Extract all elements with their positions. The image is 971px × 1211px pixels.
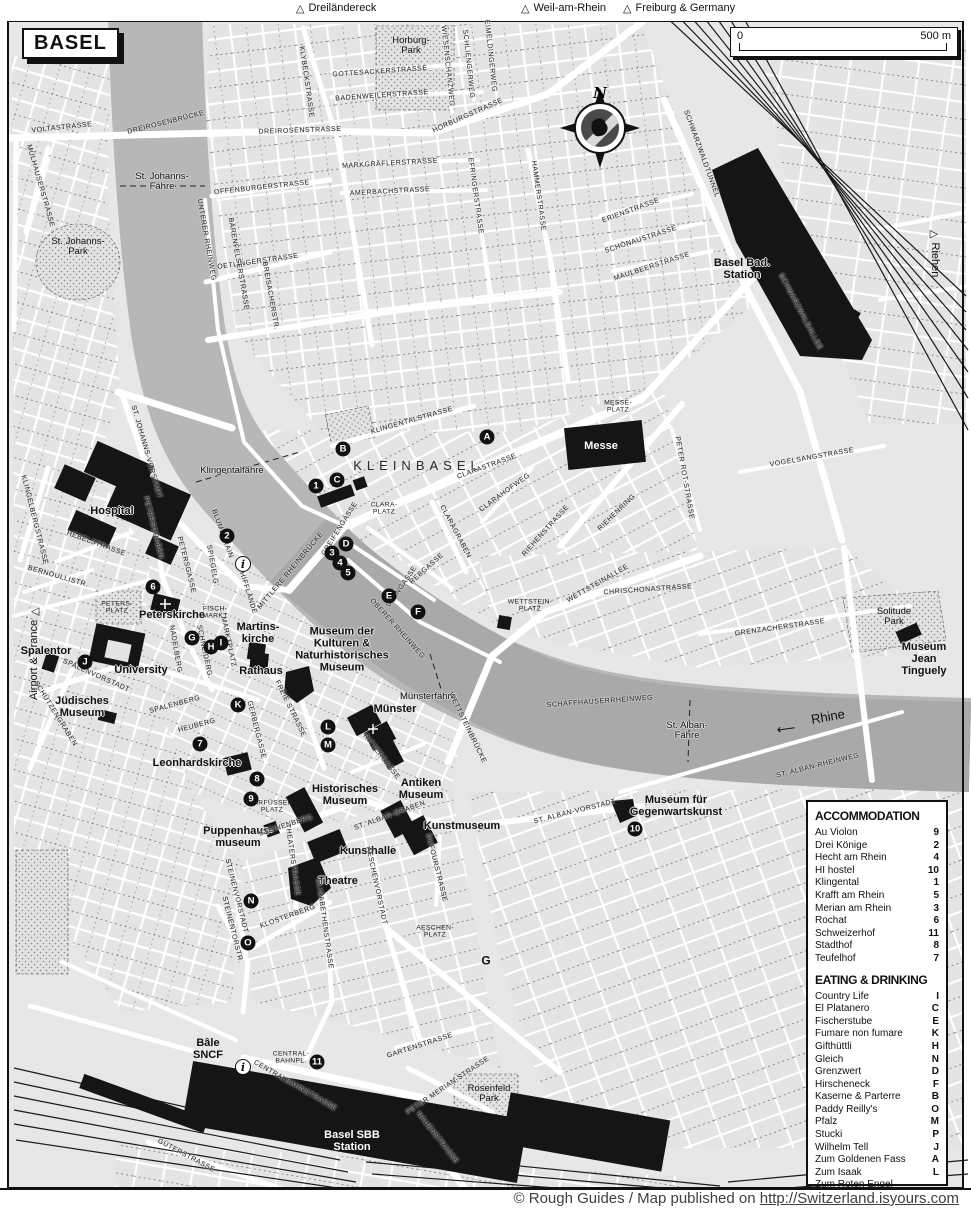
legend-item-key: J (933, 1142, 939, 1155)
legend-item-key: 1 (933, 877, 939, 890)
rathaus-building (249, 652, 269, 674)
legend-item-key: K (932, 1028, 939, 1041)
legend-item-key: L (933, 1167, 939, 1180)
edge-label-text: Airport & France (28, 620, 41, 700)
edge-label-weil-am-rhein: △ Weil-am-Rhein (521, 2, 606, 15)
marker-info-2: i (235, 1059, 251, 1075)
legend-item: GleichN (815, 1054, 939, 1067)
legend-item-name: Zum Isaak (815, 1167, 862, 1180)
marker-7: 7 (193, 737, 208, 752)
legend-item: Zum Goldenen FassA (815, 1154, 939, 1167)
marker-C: C (330, 473, 345, 488)
legend-item-name: Stucki (815, 1129, 842, 1142)
legend-item-name: Gleich (815, 1054, 843, 1067)
legend-item-key: 10 (928, 865, 939, 878)
legend-item-name: Hirscheneck (815, 1079, 870, 1092)
legend-item-key: H (932, 1041, 939, 1054)
legend-item-key: M (931, 1116, 939, 1129)
legend-item: Krafft am Rhein5 (815, 890, 939, 903)
legend-item: HI hostel10 (815, 865, 939, 878)
legend-item-key: A (932, 1154, 939, 1167)
legend-item: Hecht am Rhein4 (815, 852, 939, 865)
marker-B: B (336, 442, 351, 457)
legend-item: El PlataneroC (815, 1003, 939, 1016)
eating-list: Country LifeIEl PlataneroCFischerstubeEF… (815, 991, 939, 1193)
legend-item: Paddy Reilly'sO (815, 1104, 939, 1117)
legend-item-name: Fischerstube (815, 1016, 872, 1029)
triangle-icon: △ (28, 607, 41, 615)
copyright: © Rough Guides / Map published on http:/… (514, 1190, 959, 1207)
legend-item-name: Hecht am Rhein (815, 852, 887, 865)
legend-box: ACCOMMODATION Au Violon9Drei Könige2Hech… (806, 800, 948, 1186)
legend-item-name: Gifthüttli (815, 1041, 852, 1054)
legend-item: StuckiP (815, 1129, 939, 1142)
legend-item-name: Wilhelm Tell (815, 1142, 868, 1155)
legend-item-key: D (932, 1066, 939, 1079)
legend-item-name: Country Life (815, 991, 869, 1004)
edge-label-freiburg-germany: △ Freiburg & Germany (623, 2, 735, 15)
legend-item-name: Merian am Rhein (815, 903, 891, 916)
legend-item: Au Violon9 (815, 827, 939, 840)
legend-item: Stadthof8 (815, 940, 939, 953)
eating-title: EATING & DRINKING (815, 973, 939, 987)
triangle-icon: △ (928, 230, 941, 238)
marker-5: 5 (341, 566, 356, 581)
legend-item-name: Grenzwert (815, 1066, 861, 1079)
legend-item-key: 6 (933, 915, 939, 928)
legend-item: Klingental1 (815, 877, 939, 890)
scale-line (739, 43, 947, 51)
legend-item-name: Pfalz (815, 1116, 837, 1129)
legend-item-name: Klingental (815, 877, 859, 890)
legend-item: Rochat6 (815, 915, 939, 928)
legend-item: Merian am Rhein3 (815, 903, 939, 916)
accommodation-list: Au Violon9Drei Könige2Hecht am Rhein4HI … (815, 827, 939, 966)
legend-item: Schweizerhof11 (815, 928, 939, 941)
triangle-icon: △ (521, 2, 529, 15)
marker-L: L (321, 720, 336, 735)
marker-info-1: i (235, 556, 251, 572)
edge-label-text: Freiburg & Germany (635, 2, 735, 15)
compass-north-label: N (593, 84, 607, 102)
legend-item: GrenzwertD (815, 1066, 939, 1079)
marker-11: 11 (310, 1055, 325, 1070)
legend-item: Fumare non fumareK (815, 1028, 939, 1041)
legend-item-key: F (933, 1079, 939, 1092)
marker-D: D (339, 537, 354, 552)
legend-item-name: Teufelhof (815, 953, 856, 966)
marker-2: 2 (220, 529, 235, 544)
scale-bar: 0 500 m (730, 27, 958, 57)
marker-G: G (185, 631, 200, 646)
marker-O: O (241, 936, 256, 951)
legend-item-key: 8 (933, 940, 939, 953)
marker-1: 1 (309, 479, 324, 494)
legend-item-name: Krafft am Rhein (815, 890, 884, 903)
top-edge-strip (0, 0, 971, 21)
marker-K: K (231, 698, 246, 713)
marker-M: M (321, 738, 336, 753)
legend-item-key: 7 (933, 953, 939, 966)
marker-F: F (411, 605, 426, 620)
marker-9: 9 (244, 792, 259, 807)
legend-item: Drei Könige2 (815, 840, 939, 853)
marker-J: J (78, 655, 93, 670)
legend-item: Teufelhof7 (815, 953, 939, 966)
legend-item: PfalzM (815, 1116, 939, 1129)
marker-6: 6 (146, 580, 161, 595)
marker-10: 10 (628, 822, 643, 837)
legend-item-key: E (932, 1016, 939, 1029)
map-title: BASEL (22, 28, 119, 59)
legend-item: FischerstubeE (815, 1016, 939, 1029)
accommodation-title: ACCOMMODATION (815, 809, 939, 823)
edge-label-text: Dreiländereck (308, 2, 376, 15)
edge-label-dreilaendereck: △ Dreiländereck (296, 2, 376, 15)
legend-item-key: 11 (928, 928, 939, 941)
scale-start: 0 (737, 30, 743, 42)
legend-item-name: Zum Goldenen Fass (815, 1154, 906, 1167)
legend-item-key: 5 (933, 890, 939, 903)
legend-item-key: 2 (933, 840, 939, 853)
legend-item-name: Drei Könige (815, 840, 867, 853)
legend-item-key: B (932, 1091, 939, 1104)
legend-item-name: Au Violon (815, 827, 858, 840)
marker-E: E (382, 589, 397, 604)
legend-item-key: O (931, 1104, 939, 1117)
triangle-icon: △ (623, 2, 631, 15)
copyright-text: © Rough Guides / Map published on (514, 1190, 760, 1207)
marker-A: A (480, 430, 495, 445)
edge-label-airport-france: Airport & France △ (28, 607, 41, 700)
legend-item: HirscheneckF (815, 1079, 939, 1092)
legend-item-key: 9 (933, 827, 939, 840)
edge-label-text: Weil-am-Rhein (533, 2, 606, 15)
edge-label-text: Riehen (928, 242, 941, 277)
legend-item-key: C (932, 1003, 939, 1016)
legend-item-name: Paddy Reilly's (815, 1104, 878, 1117)
legend-item-name: Schweizerhof (815, 928, 875, 941)
marker-N: N (244, 894, 259, 909)
legend-item-key: N (932, 1054, 939, 1067)
legend-item: Wilhelm TellJ (815, 1142, 939, 1155)
legend-item-key: 4 (933, 852, 939, 865)
legend-item: GifthüttliH (815, 1041, 939, 1054)
marker-8: 8 (250, 772, 265, 787)
legend-item-name: Rochat (815, 915, 847, 928)
basel-map: △ Dreiländereck △ Weil-am-Rhein △ Freibu… (0, 0, 971, 1211)
legend-item: Kaserne & ParterreB (815, 1091, 939, 1104)
triangle-icon: △ (296, 2, 304, 15)
legend-item-name: HI hostel (815, 865, 854, 878)
legend-item-key: 3 (933, 903, 939, 916)
legend-item-name: Kaserne & Parterre (815, 1091, 901, 1104)
legend-item-name: Fumare non fumare (815, 1028, 903, 1041)
legend-item-name: El Platanero (815, 1003, 869, 1016)
legend-item-name: Stadthof (815, 940, 852, 953)
messe-building (564, 420, 646, 470)
legend-item: Country LifeI (815, 991, 939, 1004)
legend-item-key: I (936, 991, 939, 1004)
copyright-link[interactable]: http://Switzerland.isyours.com (760, 1190, 959, 1207)
legend-item: Zum IsaakL (815, 1167, 939, 1180)
marker-I: I (214, 636, 229, 651)
edge-label-riehen: △ Riehen (928, 230, 941, 277)
legend-item-key: P (932, 1129, 939, 1142)
scale-end: 500 m (920, 30, 951, 42)
